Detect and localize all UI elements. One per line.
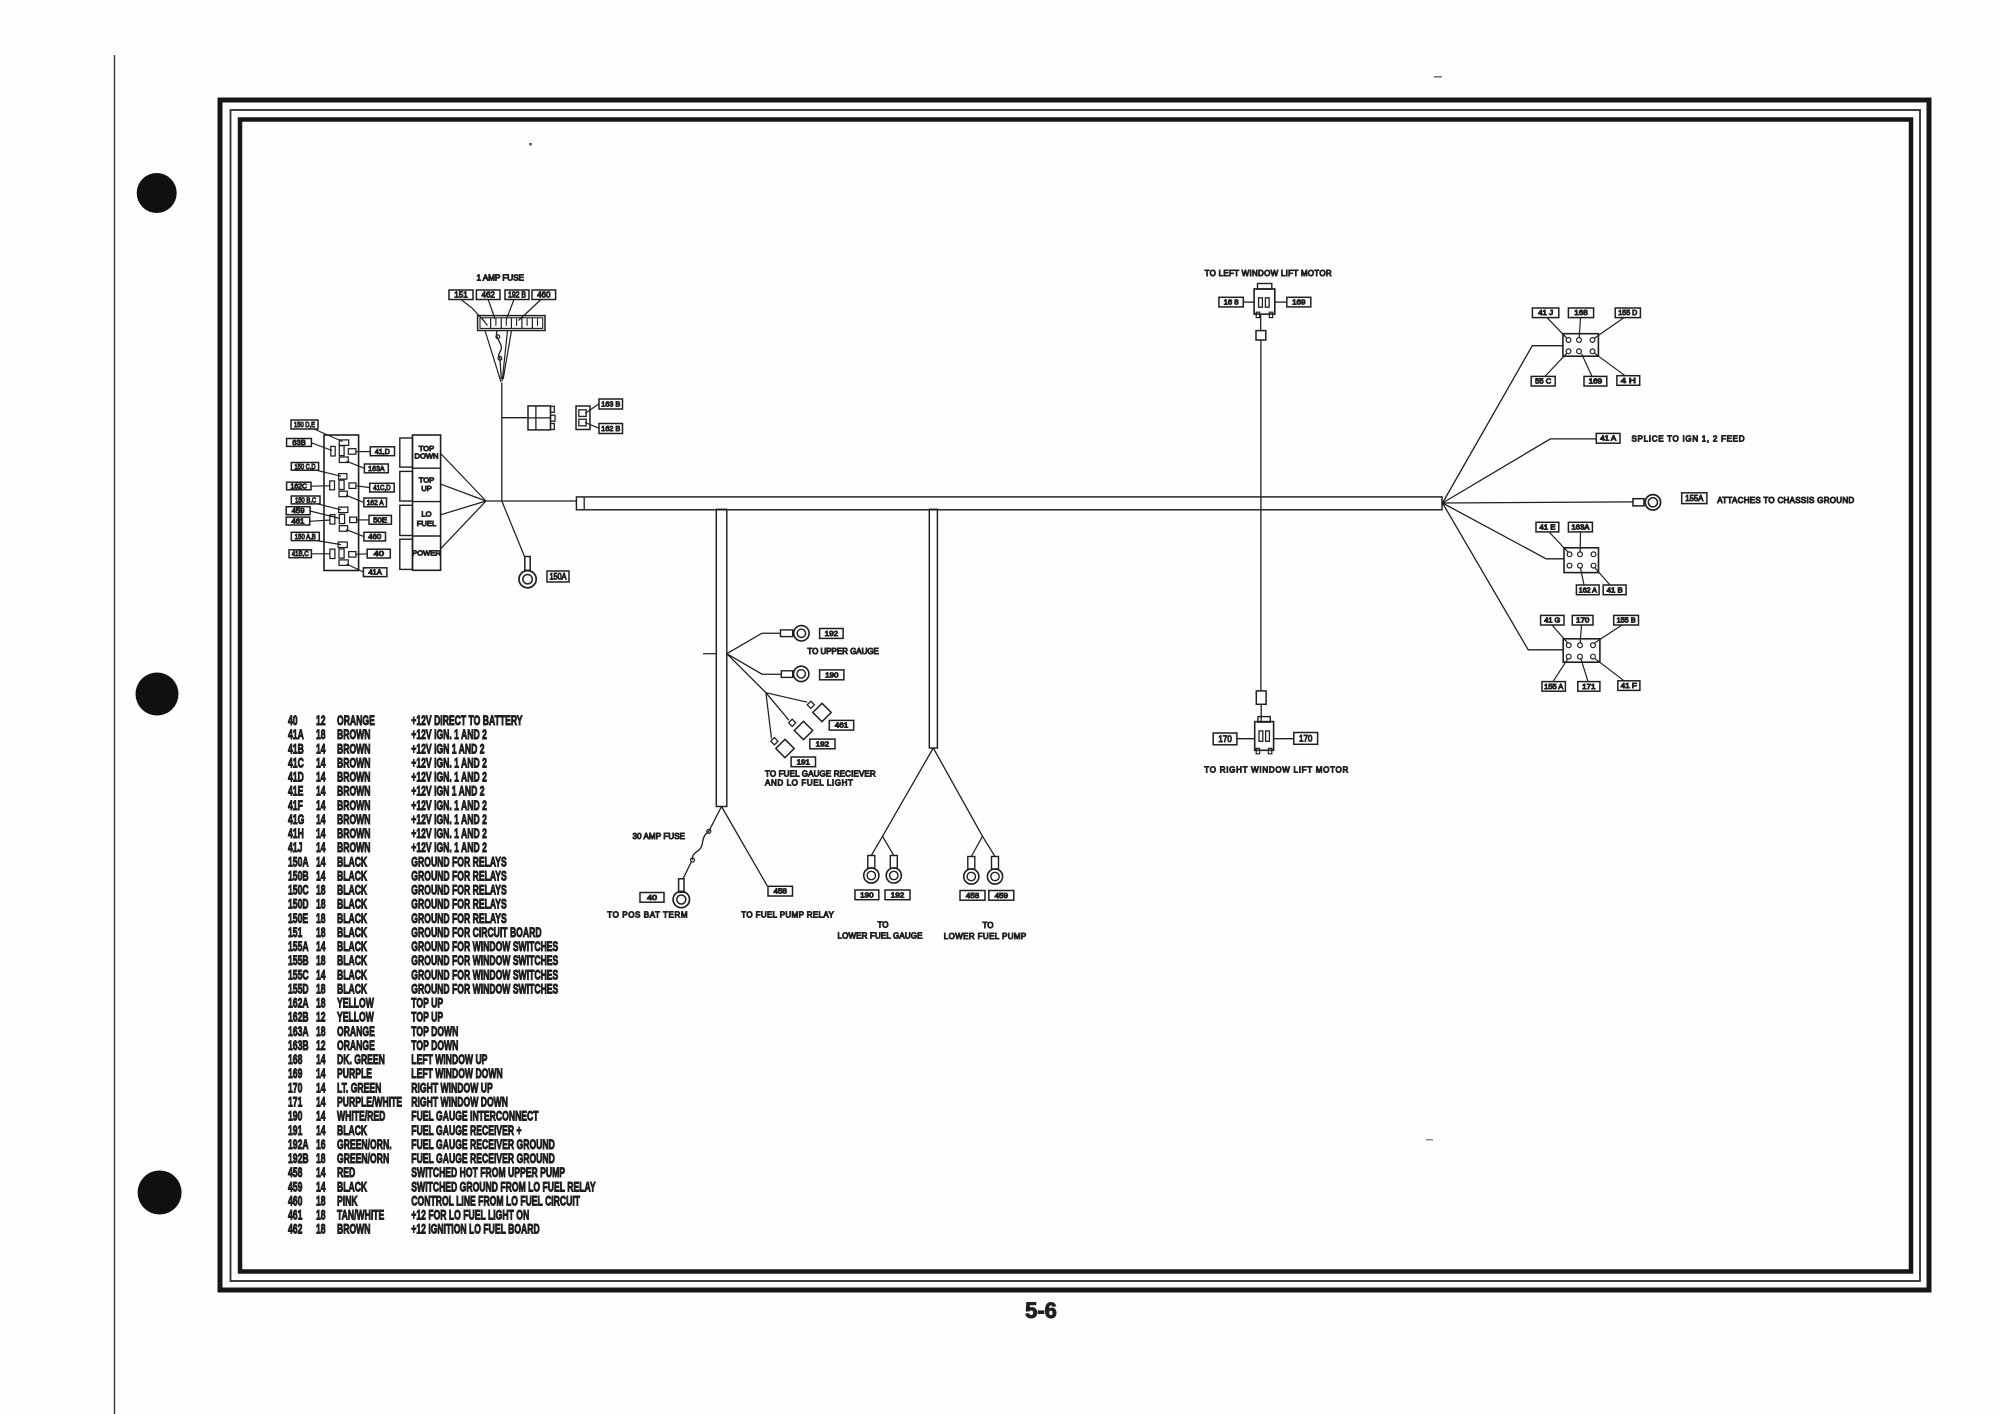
svg-text:41 A: 41 A	[1600, 434, 1616, 443]
svg-text:192A: 192A	[288, 1138, 309, 1152]
svg-text:PINK: PINK	[337, 1195, 358, 1209]
svg-text:18: 18	[316, 926, 326, 940]
svg-text:BROWN: BROWN	[337, 785, 371, 799]
svg-text:50E: 50E	[373, 515, 387, 524]
svg-text:150 B,C: 150 B,C	[295, 495, 316, 504]
svg-text:41 G: 41 G	[1544, 616, 1560, 625]
svg-text:BROWN: BROWN	[337, 841, 371, 855]
svg-text:TO POS BAT TERM: TO POS BAT TERM	[607, 911, 688, 920]
svg-text:BROWN: BROWN	[337, 799, 371, 813]
svg-text:169: 169	[1589, 377, 1602, 386]
svg-text:RIGHT WINDOW UP: RIGHT WINDOW UP	[411, 1082, 493, 1096]
svg-text:55 C: 55 C	[1535, 377, 1551, 386]
svg-text:4 H: 4 H	[1621, 376, 1636, 385]
svg-text:163A: 163A	[368, 464, 385, 473]
svg-text:GREEN/ORN: GREEN/ORN	[337, 1152, 389, 1166]
svg-text:169: 169	[288, 1067, 302, 1081]
svg-text:18: 18	[316, 997, 326, 1011]
svg-text:TO RIGHT WINDOW LIFT MOTOR: TO RIGHT WINDOW LIFT MOTOR	[1204, 765, 1348, 774]
svg-text:41F: 41F	[288, 799, 303, 813]
svg-text:14: 14	[316, 757, 326, 771]
svg-text:TOP UP: TOP UP	[411, 1011, 443, 1025]
svg-text:14: 14	[316, 1096, 326, 1110]
svg-text:+12V IGN. 1 AND 2: +12V IGN. 1 AND 2	[411, 771, 487, 785]
svg-text:ORANGE: ORANGE	[337, 1025, 375, 1039]
svg-text:170: 170	[288, 1082, 302, 1096]
svg-text:171: 171	[1582, 682, 1595, 691]
svg-text:151: 151	[288, 926, 303, 940]
svg-text:458: 458	[966, 891, 979, 900]
svg-text:DK. GREEN: DK. GREEN	[337, 1053, 385, 1067]
svg-text:41B: 41B	[288, 743, 304, 757]
svg-text:192: 192	[825, 629, 838, 638]
svg-text:LOWER FUEL GAUGE: LOWER FUEL GAUGE	[838, 932, 923, 941]
svg-text:+12V IGN. 1 AND 2: +12V IGN. 1 AND 2	[411, 728, 487, 742]
svg-text:14: 14	[316, 870, 326, 884]
svg-text:170: 170	[1576, 616, 1589, 625]
svg-text:461: 461	[835, 721, 848, 730]
svg-text:+12 IGNITION LO FUEL BOARD: +12 IGNITION LO FUEL BOARD	[411, 1223, 539, 1237]
svg-text:+12V IGN. 1 AND 2: +12V IGN. 1 AND 2	[411, 757, 487, 771]
svg-text:TO: TO	[878, 920, 889, 929]
svg-text:+12V IGN. 1 AND 2: +12V IGN. 1 AND 2	[411, 841, 487, 855]
svg-text:18: 18	[316, 954, 326, 968]
svg-text:18: 18	[316, 1195, 326, 1209]
svg-text:+12V IGN. 1 AND 2: +12V IGN. 1 AND 2	[411, 799, 487, 813]
svg-text:14: 14	[316, 969, 326, 983]
svg-text:155 A: 155 A	[1544, 682, 1563, 691]
svg-text:162 A: 162 A	[1579, 585, 1597, 594]
svg-text:150B: 150B	[288, 870, 309, 884]
svg-text:BLACK: BLACK	[337, 1181, 368, 1195]
svg-text:162 B: 162 B	[601, 424, 620, 433]
svg-text:12: 12	[316, 1039, 326, 1053]
svg-text:171: 171	[288, 1096, 303, 1110]
svg-text:12: 12	[316, 714, 326, 728]
svg-text:41 J: 41 J	[1538, 308, 1553, 317]
svg-text:+12V IGN 1 AND 2: +12V IGN 1 AND 2	[411, 743, 484, 757]
svg-text:14: 14	[316, 785, 326, 799]
svg-text:14: 14	[316, 940, 326, 954]
svg-text:FUEL GAUGE RECEIVER +: FUEL GAUGE RECEIVER +	[411, 1124, 521, 1138]
svg-text:BROWN: BROWN	[337, 743, 371, 757]
svg-text:SWITCHED HOT FROM UPPER PUMP: SWITCHED HOT FROM UPPER PUMP	[411, 1166, 565, 1180]
svg-text:40: 40	[374, 549, 385, 558]
svg-text:TAN/WHITE: TAN/WHITE	[337, 1209, 384, 1223]
svg-text:192: 192	[891, 890, 904, 899]
svg-text:BLACK: BLACK	[337, 884, 368, 898]
svg-text:14: 14	[316, 799, 326, 813]
svg-text:155C: 155C	[288, 969, 309, 983]
svg-text:CONTROL LINE FROM LO FUEL CIRC: CONTROL LINE FROM LO FUEL CIRCUIT	[411, 1195, 580, 1209]
svg-text:150 A,B: 150 A,B	[295, 532, 316, 541]
svg-text:155D: 155D	[288, 983, 309, 997]
svg-text:TO LEFT WINDOW LIFT MOTOR: TO LEFT WINDOW LIFT MOTOR	[1205, 269, 1332, 278]
svg-text:162 A: 162 A	[367, 498, 385, 507]
svg-text:GROUND FOR RELAYS: GROUND FOR RELAYS	[411, 912, 507, 926]
svg-text:170: 170	[1218, 734, 1231, 744]
svg-text:DOWN: DOWN	[414, 452, 438, 461]
svg-text:155 D: 155 D	[1618, 308, 1637, 317]
svg-text:14: 14	[316, 1181, 326, 1195]
svg-text:151: 151	[454, 290, 468, 300]
svg-text:14: 14	[316, 1082, 326, 1096]
svg-text:WHITE/RED: WHITE/RED	[337, 1110, 385, 1124]
svg-text:462: 462	[288, 1223, 302, 1237]
svg-text:5-6: 5-6	[1025, 1298, 1057, 1323]
svg-text:GROUND FOR RELAYS: GROUND FOR RELAYS	[411, 856, 507, 870]
svg-text:BLACK: BLACK	[337, 898, 368, 912]
svg-text:GROUND FOR WINDOW SWITCHES: GROUND FOR WINDOW SWITCHES	[411, 940, 558, 954]
svg-text:162B: 162B	[288, 1011, 309, 1025]
svg-text:192 B: 192 B	[508, 290, 526, 300]
svg-text:40: 40	[288, 714, 298, 728]
svg-text:168: 168	[1574, 308, 1587, 317]
svg-text:14: 14	[316, 1053, 326, 1067]
svg-text:18: 18	[316, 1223, 326, 1237]
svg-text:150A: 150A	[550, 571, 567, 581]
svg-text:12: 12	[316, 1011, 326, 1025]
svg-text:LT. GREEN: LT. GREEN	[337, 1082, 381, 1096]
svg-text:459: 459	[288, 1181, 302, 1195]
svg-text:41 B: 41 B	[1607, 585, 1623, 594]
svg-text:461: 461	[291, 517, 304, 526]
svg-text:GREEN/ORN.: GREEN/ORN.	[337, 1138, 392, 1152]
svg-text:TOP UP: TOP UP	[411, 997, 443, 1011]
svg-text:AND LO FUEL LIGHT: AND LO FUEL LIGHT	[765, 779, 853, 788]
svg-text:41J: 41J	[288, 841, 302, 855]
svg-text:41C: 41C	[288, 757, 304, 771]
svg-text:163B: 163B	[288, 1039, 309, 1053]
svg-text:190: 190	[825, 670, 838, 679]
svg-text:462: 462	[482, 290, 496, 300]
svg-text:+12 FOR LO FUEL LIGHT ON: +12 FOR LO FUEL LIGHT ON	[411, 1209, 529, 1223]
svg-text:14: 14	[316, 827, 326, 841]
svg-text:150A: 150A	[288, 856, 309, 870]
svg-text:PURPLE: PURPLE	[337, 1067, 372, 1081]
svg-text:LEFT WINDOW UP: LEFT WINDOW UP	[411, 1053, 487, 1067]
svg-text:14: 14	[316, 1166, 326, 1180]
svg-text:+12V IGN. 1 AND 2: +12V IGN. 1 AND 2	[411, 827, 487, 841]
svg-text:14: 14	[316, 1124, 326, 1138]
svg-text:BLACK: BLACK	[337, 983, 368, 997]
svg-text:FUEL GAUGE INTERCONNECT: FUEL GAUGE INTERCONNECT	[411, 1110, 538, 1124]
svg-text:155B: 155B	[288, 954, 309, 968]
svg-text:460: 460	[368, 532, 381, 541]
svg-text:FUEL: FUEL	[417, 519, 436, 528]
svg-text:41E: 41E	[288, 785, 304, 799]
svg-text:190: 190	[288, 1110, 302, 1124]
svg-text:41D: 41D	[288, 771, 304, 785]
svg-text:SPLICE TO IGN 1, 2 FEED: SPLICE TO IGN 1, 2 FEED	[1632, 435, 1745, 444]
svg-text:163A: 163A	[288, 1025, 309, 1039]
svg-text:LO: LO	[421, 509, 431, 518]
svg-text:14: 14	[316, 743, 326, 757]
svg-text:155A: 155A	[288, 940, 309, 954]
svg-text:458: 458	[774, 887, 787, 896]
svg-text:18: 18	[316, 1152, 326, 1166]
svg-text:41A: 41A	[288, 728, 304, 742]
svg-text:461: 461	[288, 1209, 303, 1223]
svg-text:41H: 41H	[288, 827, 304, 841]
svg-text:41 F: 41 F	[1621, 681, 1638, 690]
svg-text:14: 14	[316, 771, 326, 785]
svg-text:YELLOW: YELLOW	[337, 997, 374, 1011]
svg-text:BROWN: BROWN	[337, 1223, 371, 1237]
svg-text:41,D: 41,D	[375, 447, 390, 456]
svg-text:ATTACHES TO CHASSIS GROUND: ATTACHES TO CHASSIS GROUND	[1717, 496, 1854, 505]
svg-text:460: 460	[537, 290, 551, 300]
svg-text:150D: 150D	[288, 898, 309, 912]
svg-text:458: 458	[288, 1166, 303, 1180]
svg-text:TO UPPER GAUGE: TO UPPER GAUGE	[807, 647, 879, 656]
svg-text:163 B: 163 B	[601, 400, 620, 409]
svg-text:POWER: POWER	[412, 549, 441, 558]
svg-text:LOWER FUEL PUMP: LOWER FUEL PUMP	[944, 932, 1027, 941]
svg-text:168: 168	[288, 1053, 303, 1067]
svg-text:TO FUEL GAUGE RECIEVER: TO FUEL GAUGE RECIEVER	[765, 770, 876, 779]
svg-text:BROWN: BROWN	[337, 757, 371, 771]
svg-text:41A: 41A	[368, 568, 382, 577]
svg-text:BROWN: BROWN	[337, 827, 371, 841]
svg-text:155A: 155A	[1685, 493, 1703, 503]
svg-text:GROUND FOR RELAYS: GROUND FOR RELAYS	[411, 884, 507, 898]
svg-text:FUEL GAUGE RECEIVER GROUND: FUEL GAUGE RECEIVER GROUND	[411, 1138, 555, 1152]
svg-text:18: 18	[316, 1209, 326, 1223]
svg-text:RED: RED	[337, 1166, 355, 1180]
svg-text:ORANGE: ORANGE	[337, 714, 375, 728]
svg-text:14: 14	[316, 856, 326, 870]
svg-text:GROUND FOR RELAYS: GROUND FOR RELAYS	[411, 870, 507, 884]
svg-text:+12V IGN. 1 AND 2: +12V IGN. 1 AND 2	[411, 813, 487, 827]
svg-text:BROWN: BROWN	[337, 771, 371, 785]
svg-text:191: 191	[288, 1124, 303, 1138]
svg-text:BROWN: BROWN	[337, 813, 371, 827]
svg-text:GROUND FOR WINDOW SWITCHES: GROUND FOR WINDOW SWITCHES	[411, 983, 558, 997]
svg-text:150 C,D: 150 C,D	[295, 462, 316, 471]
svg-text:41 E: 41 E	[1539, 523, 1555, 532]
svg-text:GROUND FOR RELAYS: GROUND FOR RELAYS	[411, 898, 507, 912]
svg-text:TO: TO	[983, 921, 994, 930]
svg-text:BLACK: BLACK	[337, 969, 368, 983]
svg-text:LEFT WINDOW DOWN: LEFT WINDOW DOWN	[411, 1067, 502, 1081]
svg-text:18: 18	[316, 898, 326, 912]
svg-text:41G: 41G	[288, 813, 304, 827]
svg-text:BLACK: BLACK	[337, 1124, 368, 1138]
svg-text:ORANGE: ORANGE	[337, 1039, 375, 1053]
svg-text:192: 192	[816, 739, 829, 748]
svg-text:BLACK: BLACK	[337, 954, 368, 968]
svg-text:41C,D: 41C,D	[373, 483, 391, 492]
svg-text:16: 16	[316, 1138, 326, 1152]
svg-text:150 D,E: 150 D,E	[294, 420, 315, 429]
svg-text:FUEL GAUGE RECEIVER GROUND: FUEL GAUGE RECEIVER GROUND	[411, 1152, 555, 1166]
svg-text:BLACK: BLACK	[337, 912, 368, 926]
svg-text:14: 14	[316, 1067, 326, 1081]
svg-text:18: 18	[316, 728, 326, 742]
svg-text:GROUND FOR CIRCUIT BOARD: GROUND FOR CIRCUIT BOARD	[411, 926, 541, 940]
svg-text:GROUND FOR WINDOW SWITCHES: GROUND FOR WINDOW SWITCHES	[411, 969, 558, 983]
svg-text:40: 40	[647, 893, 657, 902]
svg-text:14: 14	[316, 813, 326, 827]
svg-text:16 8: 16 8	[1224, 298, 1239, 307]
svg-text:41B,C: 41B,C	[292, 549, 309, 558]
svg-text:162C: 162C	[291, 481, 308, 490]
svg-text:460: 460	[288, 1195, 302, 1209]
svg-text:BLACK: BLACK	[337, 856, 368, 870]
svg-text:14: 14	[316, 841, 326, 855]
svg-text:63B: 63B	[292, 438, 306, 447]
svg-text:YELLOW: YELLOW	[337, 1011, 374, 1025]
svg-text:RIGHT WINDOW DOWN: RIGHT WINDOW DOWN	[411, 1096, 508, 1110]
svg-text:+12V IGN 1 AND 2: +12V IGN 1 AND 2	[411, 785, 484, 799]
svg-text:TOP DOWN: TOP DOWN	[411, 1025, 458, 1039]
svg-text:GROUND FOR WINDOW SWITCHES: GROUND FOR WINDOW SWITCHES	[411, 954, 558, 968]
svg-text:PURPLE/WHITE: PURPLE/WHITE	[337, 1096, 402, 1110]
svg-text:14: 14	[316, 1110, 326, 1124]
svg-text:169: 169	[1292, 298, 1305, 307]
svg-text:18: 18	[316, 983, 326, 997]
svg-text:UP: UP	[421, 484, 432, 493]
svg-text:1 AMP FUSE: 1 AMP FUSE	[477, 273, 525, 282]
svg-text:459: 459	[995, 891, 1008, 900]
svg-text:155 B: 155 B	[1617, 616, 1636, 625]
svg-text:BLACK: BLACK	[337, 926, 368, 940]
svg-text:18: 18	[316, 1025, 326, 1039]
svg-text:459: 459	[292, 506, 305, 515]
svg-text:BROWN: BROWN	[337, 728, 371, 742]
svg-text:30 AMP FUSE: 30 AMP FUSE	[633, 832, 686, 841]
svg-text:150C: 150C	[288, 884, 309, 898]
svg-text:BLACK: BLACK	[337, 870, 368, 884]
svg-text:TOP DOWN: TOP DOWN	[411, 1039, 458, 1053]
svg-text:TO FUEL PUMP RELAY: TO FUEL PUMP RELAY	[741, 911, 834, 920]
svg-text:163A: 163A	[1571, 523, 1589, 532]
svg-text:18: 18	[316, 884, 326, 898]
svg-text:SWITCHED GROUND FROM LO FUEL R: SWITCHED GROUND FROM LO FUEL RELAY	[411, 1181, 596, 1195]
svg-text:190: 190	[860, 890, 873, 899]
svg-text:192B: 192B	[288, 1152, 309, 1166]
svg-text:150E: 150E	[288, 912, 308, 926]
svg-text:191: 191	[797, 757, 810, 766]
svg-text:BLACK: BLACK	[337, 940, 368, 954]
svg-text:170: 170	[1299, 733, 1312, 743]
svg-text:18: 18	[316, 912, 326, 926]
svg-text:162A: 162A	[288, 997, 309, 1011]
svg-text:+12V DIRECT TO BATTERY: +12V DIRECT TO BATTERY	[411, 714, 522, 728]
